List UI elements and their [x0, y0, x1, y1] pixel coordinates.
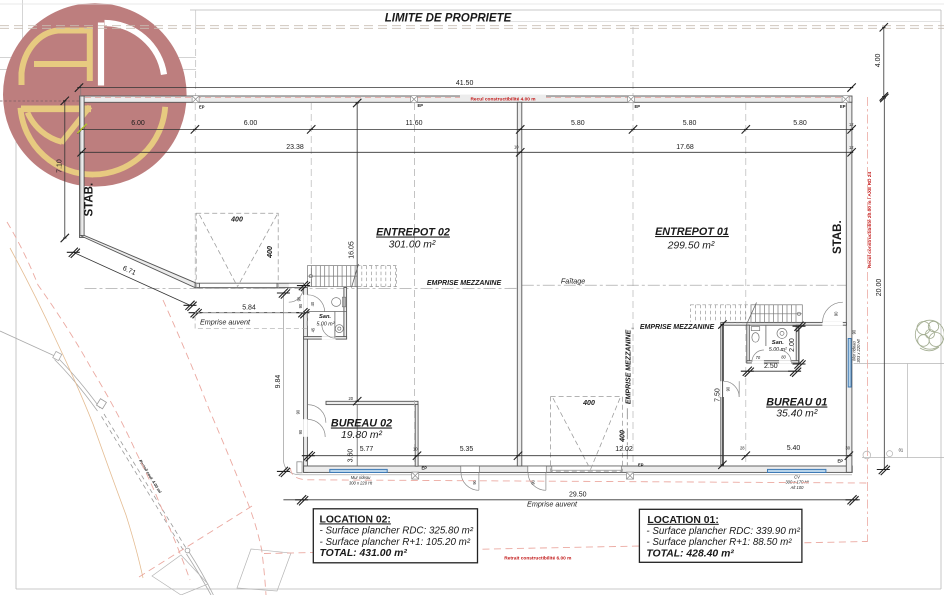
svg-text:ENTREPOT 01: ENTREPOT 01 [655, 226, 729, 238]
svg-text:LIMITE DE PROPRIETE: LIMITE DE PROPRIETE [385, 13, 512, 25]
svg-text:301.00 m²: 301.00 m² [389, 240, 436, 251]
svg-text:5.40: 5.40 [787, 445, 801, 452]
svg-text:EP: EP [422, 465, 428, 470]
svg-text:Recul constructibilité 4.00 m: Recul constructibilité 4.00 m [470, 96, 535, 102]
svg-text:Mur rideau: Mur rideau [351, 475, 371, 480]
svg-text:80: 80 [781, 355, 786, 360]
svg-text:STAB.: STAB. [832, 220, 844, 254]
svg-text:30: 30 [846, 446, 851, 451]
svg-text:90: 90 [472, 479, 477, 484]
svg-text:90: 90 [297, 296, 302, 301]
svg-text:17.68: 17.68 [676, 144, 694, 151]
svg-text:- Surface plancher R+1: 105.20: - Surface plancher R+1: 105.20 m² [320, 537, 471, 548]
svg-text:90: 90 [851, 329, 856, 334]
svg-text:90: 90 [296, 409, 301, 414]
svg-text:LOCATION 02:: LOCATION 02: [320, 514, 391, 525]
svg-text:BUREAU 02: BUREAU 02 [331, 418, 392, 430]
svg-text:LOCATION 01:: LOCATION 01: [647, 515, 718, 526]
svg-text:ENTREPOT 02: ENTREPOT 02 [376, 227, 450, 239]
svg-text:5.35: 5.35 [460, 446, 474, 453]
svg-text:San.: San. [772, 340, 784, 346]
svg-text:6.00: 6.00 [131, 120, 145, 127]
svg-text:12.02: 12.02 [615, 446, 633, 453]
svg-text:- Surface plancher R+1: 88.50: - Surface plancher R+1: 88.50 m² [646, 537, 792, 548]
svg-text:28: 28 [740, 446, 745, 451]
svg-text:90: 90 [298, 303, 303, 308]
svg-text:EMPRISE MEZZANINE: EMPRISE MEZZANINE [427, 280, 502, 287]
svg-text:EP: EP [840, 104, 846, 109]
svg-text:20.00: 20.00 [876, 279, 883, 297]
svg-text:5.77: 5.77 [360, 446, 374, 453]
svg-text:EP: EP [199, 105, 205, 110]
svg-text:10: 10 [413, 446, 418, 451]
svg-text:01: 01 [899, 448, 904, 453]
svg-text:12: 12 [849, 122, 854, 127]
svg-text:EP: EP [838, 459, 844, 464]
svg-text:Alt 100: Alt 100 [790, 485, 804, 490]
svg-text:299.50 m²: 299.50 m² [667, 241, 715, 252]
svg-text:35.40 m²: 35.40 m² [776, 409, 818, 420]
svg-text:EP: EP [638, 463, 644, 468]
svg-text:41.50: 41.50 [456, 80, 474, 87]
svg-text:90: 90 [834, 311, 839, 316]
svg-text:23.38: 23.38 [286, 144, 304, 151]
svg-text:19.80 m²: 19.80 m² [341, 430, 383, 441]
svg-text:20: 20 [349, 396, 354, 401]
svg-text:5.80: 5.80 [571, 120, 585, 127]
svg-text:5.00 m²: 5.00 m² [769, 347, 787, 353]
svg-text:7.10: 7.10 [57, 159, 64, 173]
svg-text:5.80: 5.80 [683, 120, 697, 127]
svg-text:400: 400 [620, 430, 627, 443]
svg-text:12: 12 [849, 145, 854, 150]
svg-text:- Surface plancher RDC: 339.90: - Surface plancher RDC: 339.90 m² [646, 526, 800, 537]
svg-text:San.: San. [319, 314, 331, 320]
svg-text:STAB.: STAB. [84, 183, 96, 217]
svg-text:2.00: 2.00 [789, 338, 796, 352]
svg-text:2.50: 2.50 [764, 363, 778, 370]
svg-text:Recul constructibilité 20.00 m: Recul constructibilité 20.00 m / AXE RD … [867, 172, 873, 269]
svg-text:5.84: 5.84 [242, 304, 256, 311]
svg-text:EP: EP [418, 103, 424, 108]
svg-text:300 x 220 Ht: 300 x 220 Ht [349, 481, 373, 486]
svg-text:EMPRISE MEZZANINE: EMPRISE MEZZANINE [640, 324, 715, 331]
svg-text:9.84: 9.84 [275, 375, 282, 389]
svg-text:303 x 220 Ht: 303 x 220 Ht [856, 339, 861, 363]
svg-text:Faîtage: Faîtage [561, 277, 585, 286]
svg-text:Emprise auvent: Emprise auvent [200, 318, 251, 327]
svg-text:70: 70 [756, 355, 761, 360]
svg-text:5.80: 5.80 [793, 120, 807, 127]
svg-text:40: 40 [310, 301, 315, 306]
svg-text:90: 90 [726, 386, 731, 391]
svg-text:45: 45 [311, 327, 316, 332]
svg-text:BUREAU 01: BUREAU 01 [766, 397, 827, 409]
svg-text:EP: EP [635, 104, 641, 109]
svg-text:TOTAL: 431.00 m²: TOTAL: 431.00 m² [320, 548, 408, 559]
svg-text:400: 400 [582, 400, 595, 407]
svg-text:5.00 m²: 5.00 m² [317, 321, 335, 327]
svg-text:Emprise auvent: Emprise auvent [527, 500, 578, 509]
svg-text:90: 90 [298, 429, 303, 434]
svg-text:400: 400 [230, 217, 243, 224]
svg-text:TOTAL: 428.40 m²: TOTAL: 428.40 m² [646, 548, 734, 559]
svg-text:11.60: 11.60 [406, 120, 423, 127]
svg-text:10: 10 [514, 144, 519, 149]
svg-text:4.00: 4.00 [875, 53, 882, 67]
svg-text:6.00: 6.00 [244, 120, 258, 127]
svg-text:7.50: 7.50 [714, 388, 721, 402]
svg-text:16.05: 16.05 [348, 241, 355, 259]
svg-text:EMPRISE MEZZANINE: EMPRISE MEZZANINE [625, 330, 632, 405]
svg-text:90: 90 [530, 479, 535, 484]
svg-text:3.60: 3.60 [348, 449, 355, 463]
svg-text:Retrait constructibilité 6.00: Retrait constructibilité 6.00 m [504, 555, 571, 561]
svg-text:- Surface plancher RDC: 325.80: - Surface plancher RDC: 325.80 m² [320, 526, 474, 537]
svg-text:29.50: 29.50 [569, 492, 587, 499]
svg-text:400: 400 [267, 246, 274, 259]
